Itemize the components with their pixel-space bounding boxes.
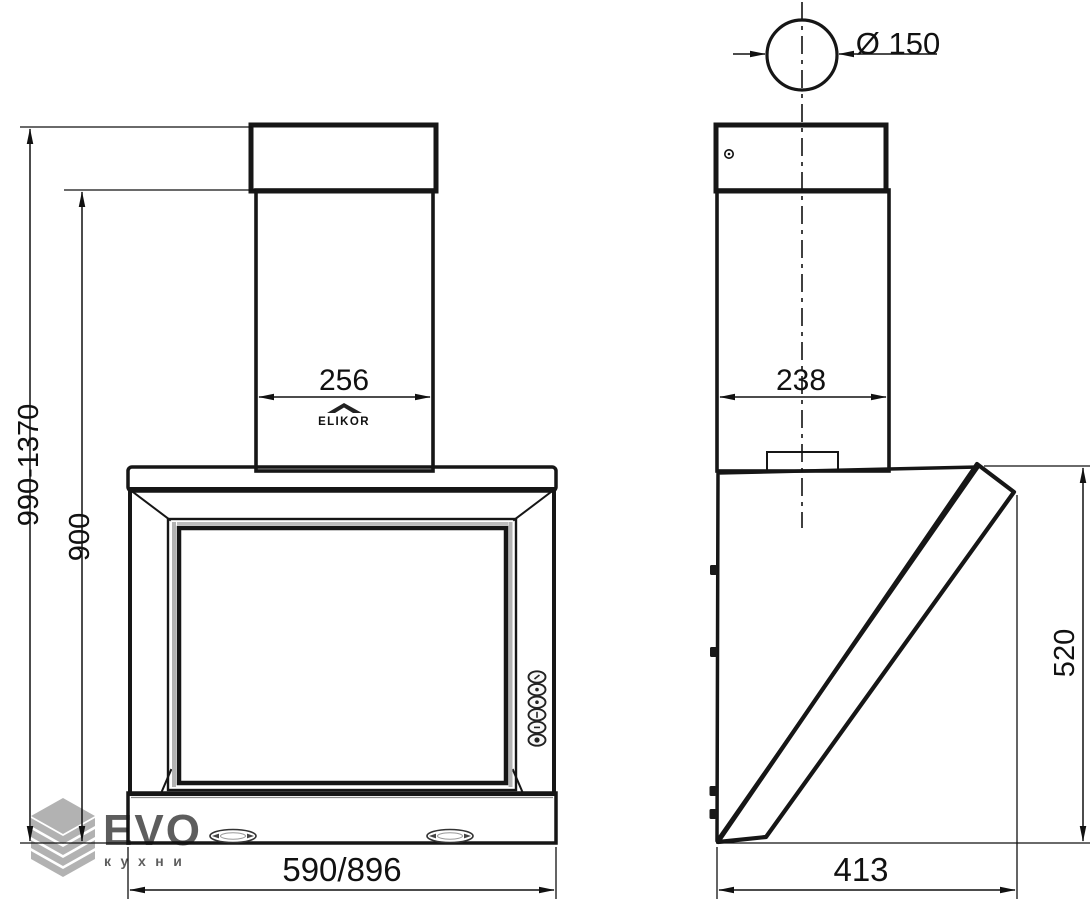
brand-logo: ELIKOR — [318, 403, 370, 428]
control-buttons — [529, 671, 546, 745]
watermark: EVO кухни — [31, 798, 202, 877]
side-inclined-glass-panel — [718, 464, 1014, 842]
side-chimney-upper-section — [716, 125, 886, 191]
dim-label-chimney-depth: 238 — [776, 364, 826, 397]
dim-depth: 413 — [719, 851, 1015, 890]
front-frame-outer — [130, 489, 554, 794]
brand-logo-roof-icon — [327, 403, 362, 413]
dim-overall-height-range: 990-1370 — [13, 129, 45, 841]
hinge-nub — [710, 786, 717, 796]
side-view — [710, 2, 1015, 842]
control-button-glyph — [535, 700, 539, 704]
hinge-nub — [710, 565, 717, 575]
dim-label-body-height: 900 — [64, 513, 96, 561]
control-button-glyph — [534, 737, 539, 742]
dim-label-chimney-width: 256 — [319, 364, 369, 397]
watermark-cube-icon — [31, 798, 95, 877]
dim-label-duct-diameter: Ø 150 — [856, 26, 940, 61]
frame-miter-top-right — [514, 492, 551, 520]
dim-label-depth: 413 — [833, 851, 888, 888]
front-frame — [130, 489, 554, 794]
lamp — [427, 830, 473, 843]
side-chimney-lower-section — [717, 190, 889, 471]
front-glass-panel — [179, 528, 506, 783]
dim-label-panel-height: 520 — [1049, 629, 1081, 677]
dim-body-height: 900 — [64, 192, 96, 841]
frame-miter-bottom-left — [162, 770, 171, 791]
front-frame-inner — [168, 519, 516, 790]
front-chimney-lower-section — [256, 190, 433, 471]
frame-miter-top-left — [133, 492, 170, 520]
watermark-tagline-text: кухни — [104, 853, 191, 869]
lamp — [210, 830, 256, 843]
control-button-glyph — [535, 688, 539, 692]
watermark-brand-text: EVO — [103, 806, 202, 855]
dim-label-overall-height: 990-1370 — [13, 404, 45, 527]
frame-miter-bottom-right — [513, 770, 522, 791]
hinge-nub — [710, 809, 717, 819]
dim-width-options: 590/896 — [130, 851, 554, 890]
brand-logo-text: ELIKOR — [318, 416, 370, 428]
screw-detail — [725, 150, 733, 158]
dim-chimney-width: 256 — [259, 364, 430, 397]
dim-label-width-options: 590/896 — [282, 851, 401, 888]
dim-panel-height: 520 — [1049, 468, 1083, 841]
dim-chimney-depth: 238 — [720, 364, 886, 397]
front-view: ELIKOR — [128, 125, 556, 843]
hinge-nub — [710, 647, 717, 657]
technical-drawing: ELIKOR — [0, 0, 1092, 900]
front-chimney-upper-section — [251, 125, 436, 191]
